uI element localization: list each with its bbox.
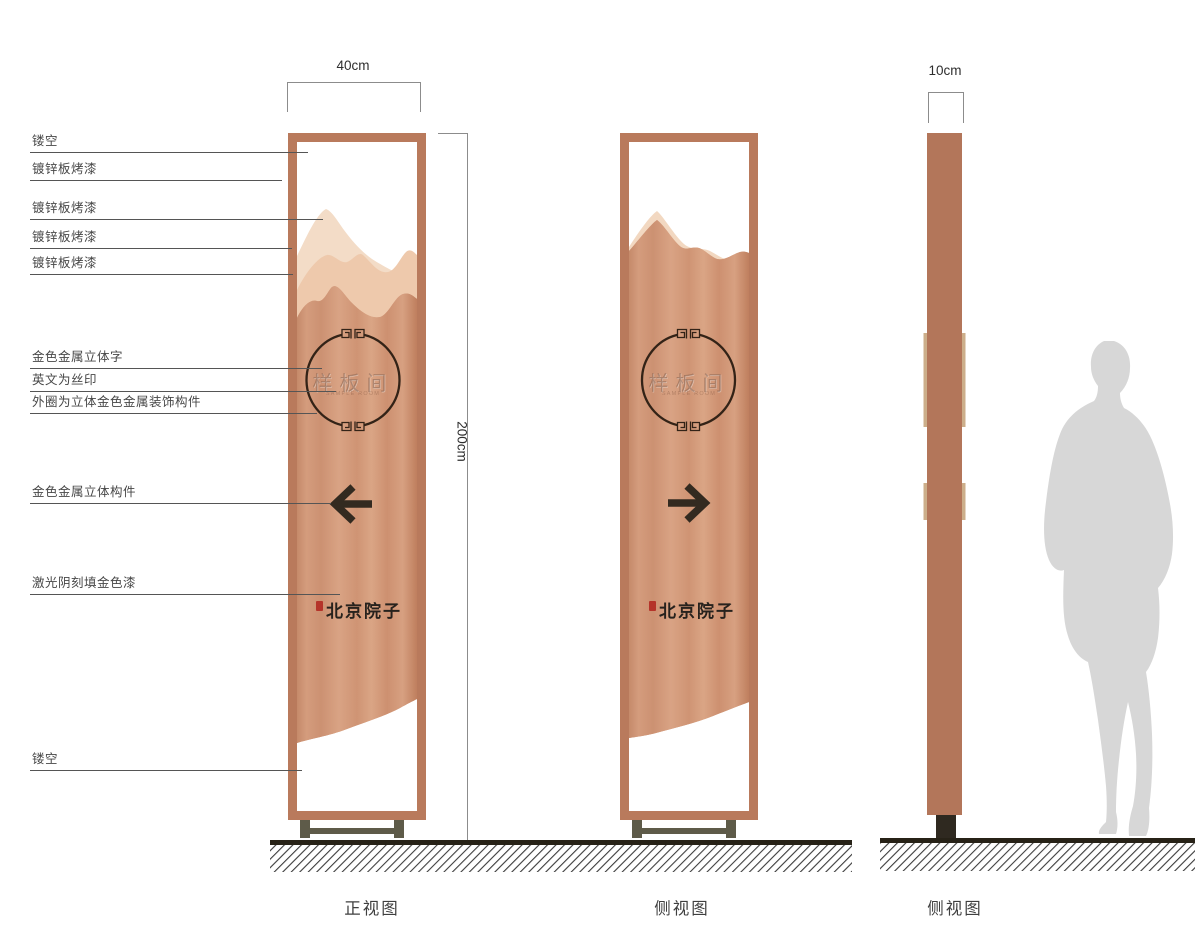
side-base-stand: [632, 820, 736, 838]
front-seal-stamp: [316, 601, 323, 611]
front-brand-calligraphy: 北京院子: [326, 597, 402, 622]
annotation-hollow-top: 镂空: [32, 134, 58, 149]
side-panel-subtitle-en: SAMPLE ROOM: [634, 391, 744, 397]
signage-spec-sheet: 样板间 SAMPLE ROOM 样板间 SAMPLE ROOM 北京院子 北京院…: [0, 0, 1195, 927]
profile-tab-circle-right: [962, 333, 966, 427]
leader-line: [30, 413, 317, 414]
dimension-bracket-tick: [287, 82, 288, 112]
leader-line: [30, 180, 282, 181]
leader-line: [30, 248, 292, 249]
annotation-hollow-bottom: 镂空: [32, 752, 58, 767]
profile-tab-circle-left: [924, 333, 928, 427]
dimension-height-line: [467, 133, 468, 840]
leader-line: [30, 770, 302, 771]
side-brand-calligraphy: 北京院子: [659, 597, 735, 622]
ground-left: [270, 840, 852, 872]
annotation-galvanized-mountain-back: 镀锌板烤漆: [32, 201, 97, 216]
caption-front-view: 正视图: [312, 895, 432, 919]
leader-line: [30, 368, 322, 369]
profile-pillar-foot: [936, 815, 956, 839]
front-view-pillar: [293, 138, 422, 839]
annotation-laser-engraved-gold: 激光阴刻填金色漆: [32, 576, 136, 591]
leader-line: [30, 391, 336, 392]
annotation-english-silkscreen: 英文为丝印: [32, 373, 97, 388]
side-view-pillar: [625, 138, 754, 839]
leader-line: [30, 219, 323, 220]
dimension-bracket-tick: [420, 82, 421, 112]
leader-line: [30, 503, 331, 504]
profile-pillar-body: [927, 133, 962, 815]
front-base-stand: [300, 820, 404, 838]
profile-tab-arrow-left: [924, 483, 928, 520]
annotation-gold-metal-component: 金色金属立体构件: [32, 485, 136, 500]
annotation-gold-metal-letters: 金色金属立体字: [32, 350, 123, 365]
dimension-front-width: 40cm: [313, 58, 393, 73]
caption-side-view: 侧视图: [622, 895, 742, 919]
annotation-outer-ring-ornament: 外圈为立体金色金属装饰构件: [32, 395, 201, 410]
annotation-galvanized-frame: 镀锌板烤漆: [32, 162, 97, 177]
dimension-height-hook: [438, 133, 467, 134]
caption-profile-view: 侧视图: [895, 895, 1015, 919]
side-seal-stamp: [649, 601, 656, 611]
dimension-side-width: 10cm: [905, 63, 985, 78]
leader-line: [30, 152, 308, 153]
dimension-bracket-tick: [963, 92, 964, 123]
profile-view-pillar: [924, 133, 966, 839]
dimension-bracket-line: [928, 92, 964, 93]
side-brushed-texture: [629, 220, 749, 738]
human-scale-silhouette: [1044, 341, 1173, 836]
ground-right: [880, 838, 1195, 871]
dimension-bracket-tick: [928, 92, 929, 123]
profile-tab-arrow-right: [962, 483, 966, 520]
leader-line: [30, 274, 293, 275]
dimension-bracket-line: [287, 82, 421, 83]
leader-line: [30, 594, 340, 595]
annotation-galvanized-mountain-mid: 镀锌板烤漆: [32, 230, 97, 245]
signage-drawing-canvas: [0, 0, 1195, 927]
annotation-galvanized-mountain-front: 镀锌板烤漆: [32, 256, 97, 271]
